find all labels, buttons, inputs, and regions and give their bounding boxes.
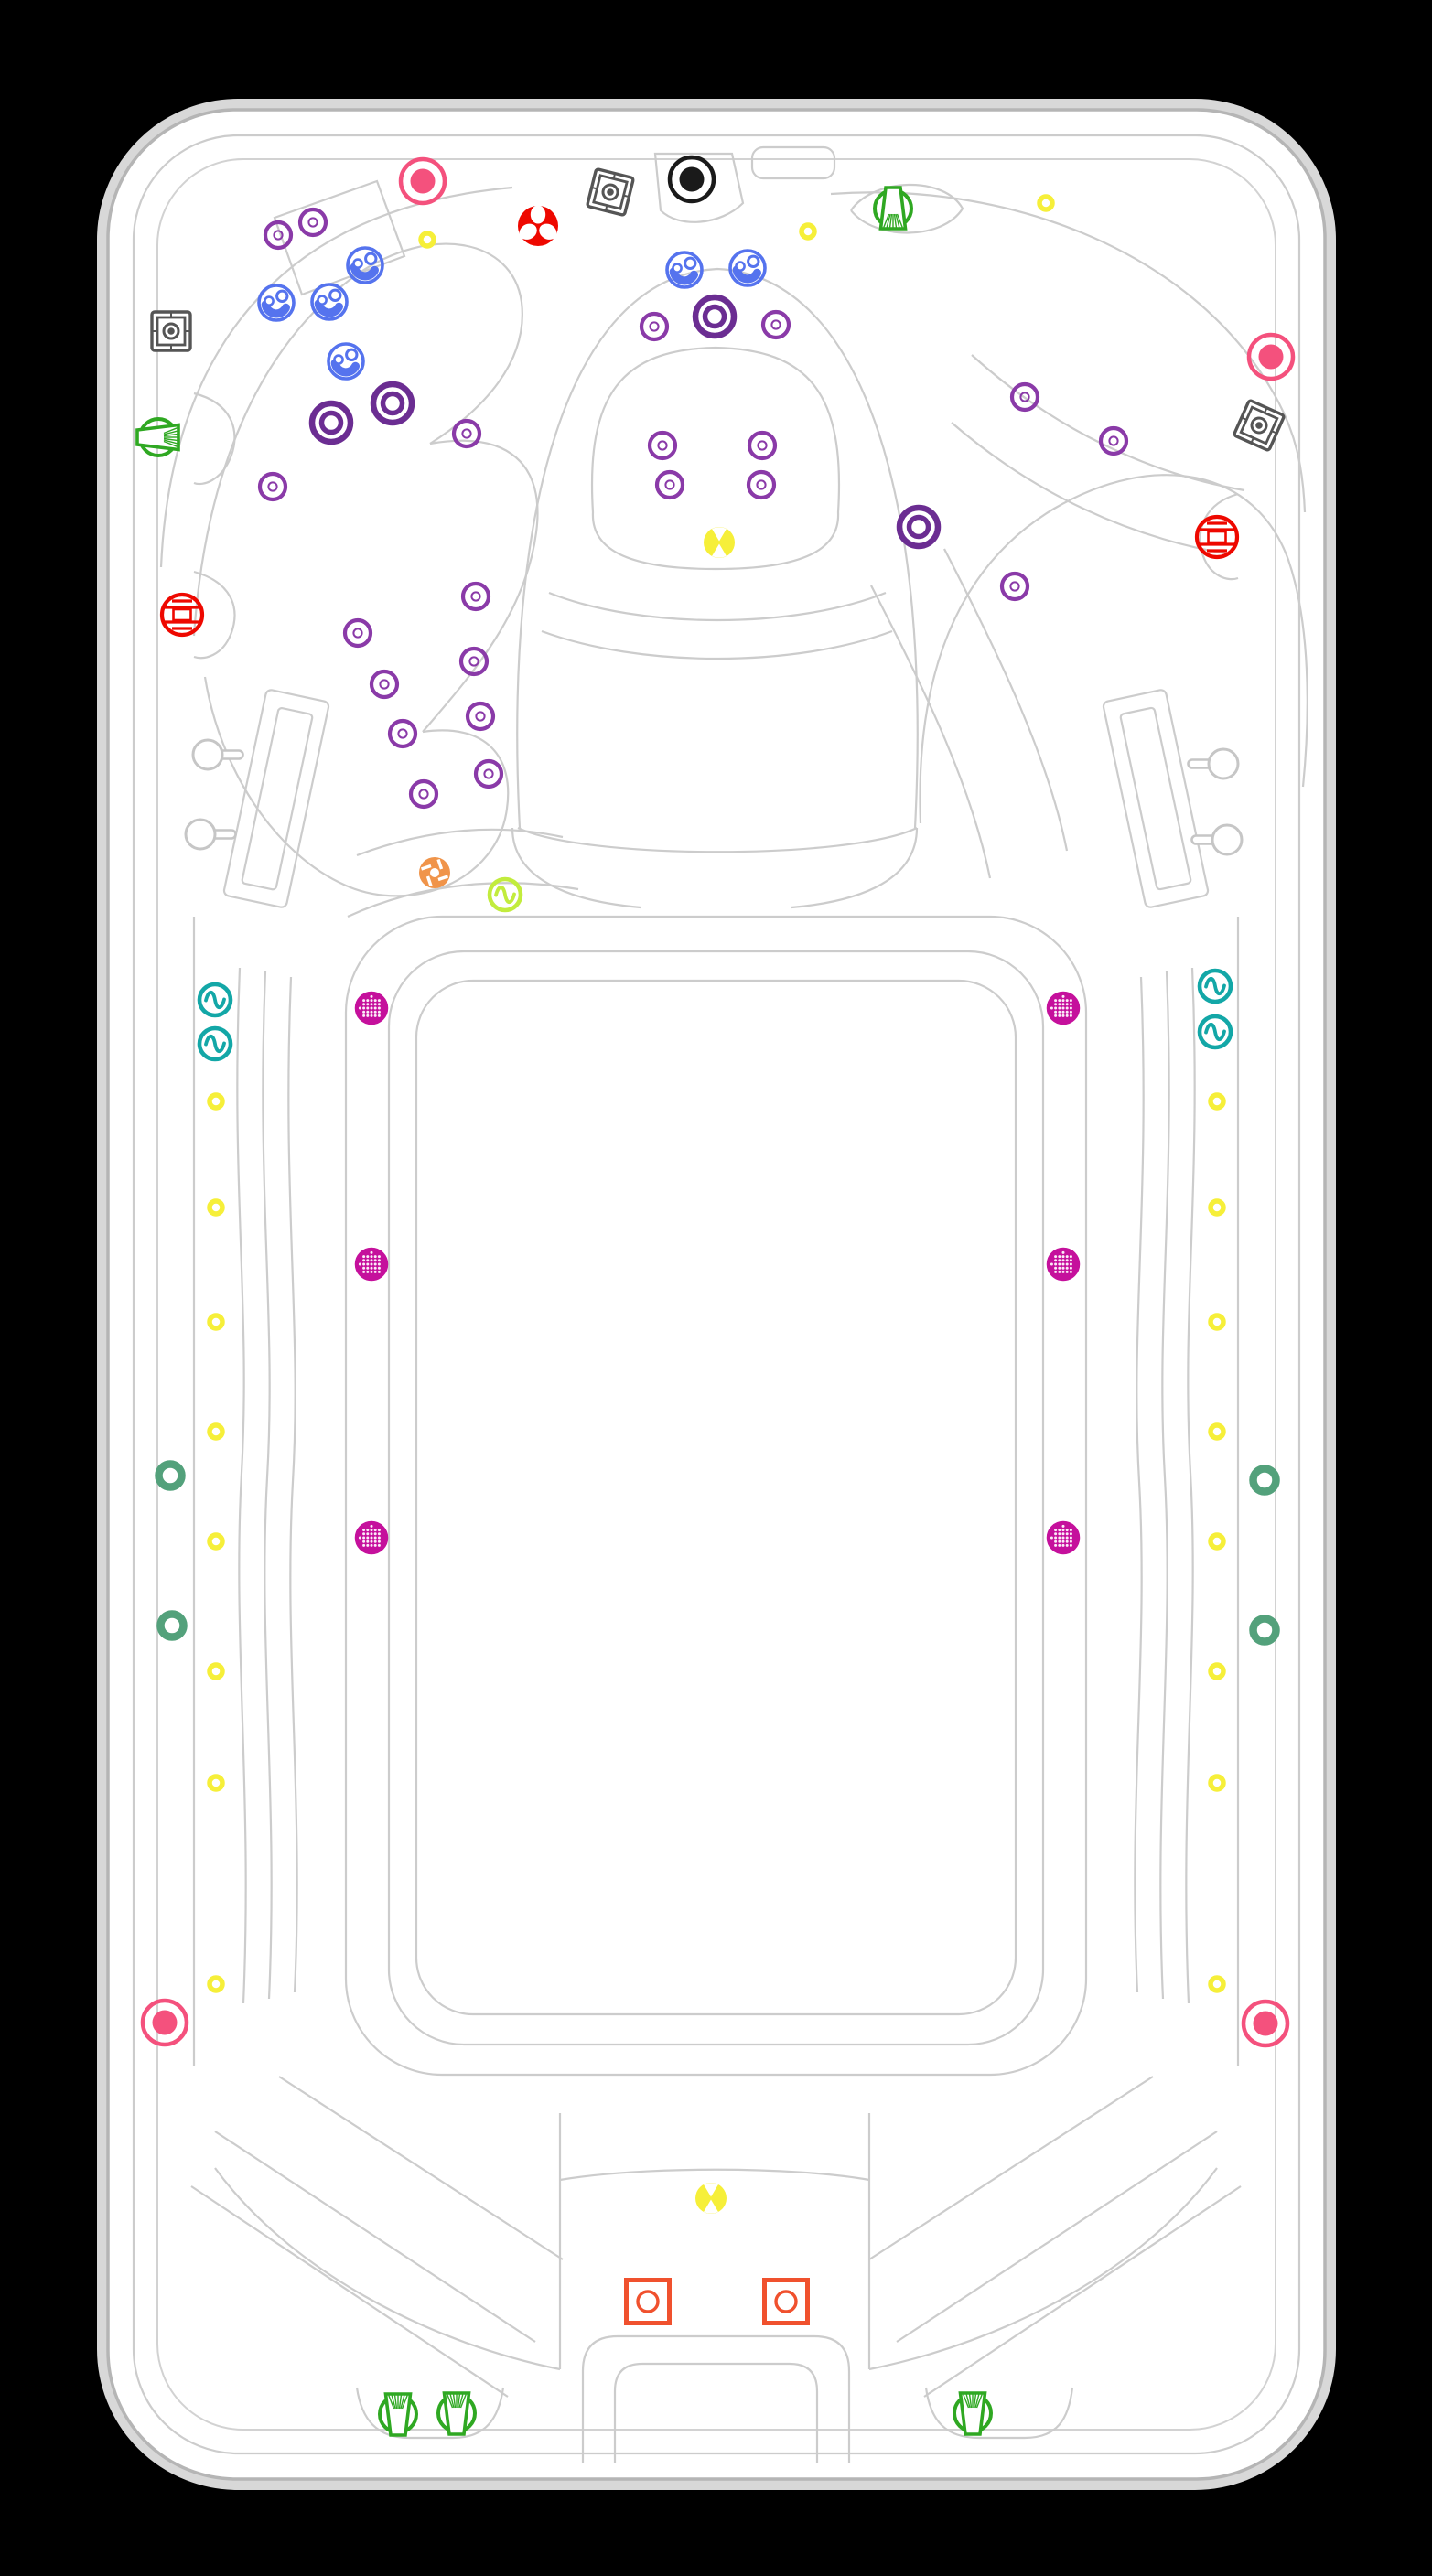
mesh-jet-icon (356, 993, 387, 1024)
speaker-icon (587, 169, 634, 216)
cabinet-outline (108, 110, 1325, 2479)
swim-spa-diagram (0, 0, 1432, 2576)
bowtie-light-icon (695, 2183, 727, 2214)
bowtie-light-icon (704, 527, 735, 558)
cabinet-shell (102, 104, 1330, 2485)
mesh-jet-icon (1048, 993, 1079, 1024)
shutter-jet-icon (419, 857, 450, 888)
mesh-jet-icon (1048, 1249, 1079, 1280)
mesh-jet-icon (356, 1249, 387, 1280)
mesh-jet-icon (1048, 1522, 1079, 1553)
mesh-jet-icon (356, 1522, 387, 1553)
speaker-icon (152, 312, 190, 350)
square-light-icon (627, 2281, 670, 2324)
square-light-icon (765, 2281, 808, 2324)
diagram-stage (0, 0, 1432, 2576)
